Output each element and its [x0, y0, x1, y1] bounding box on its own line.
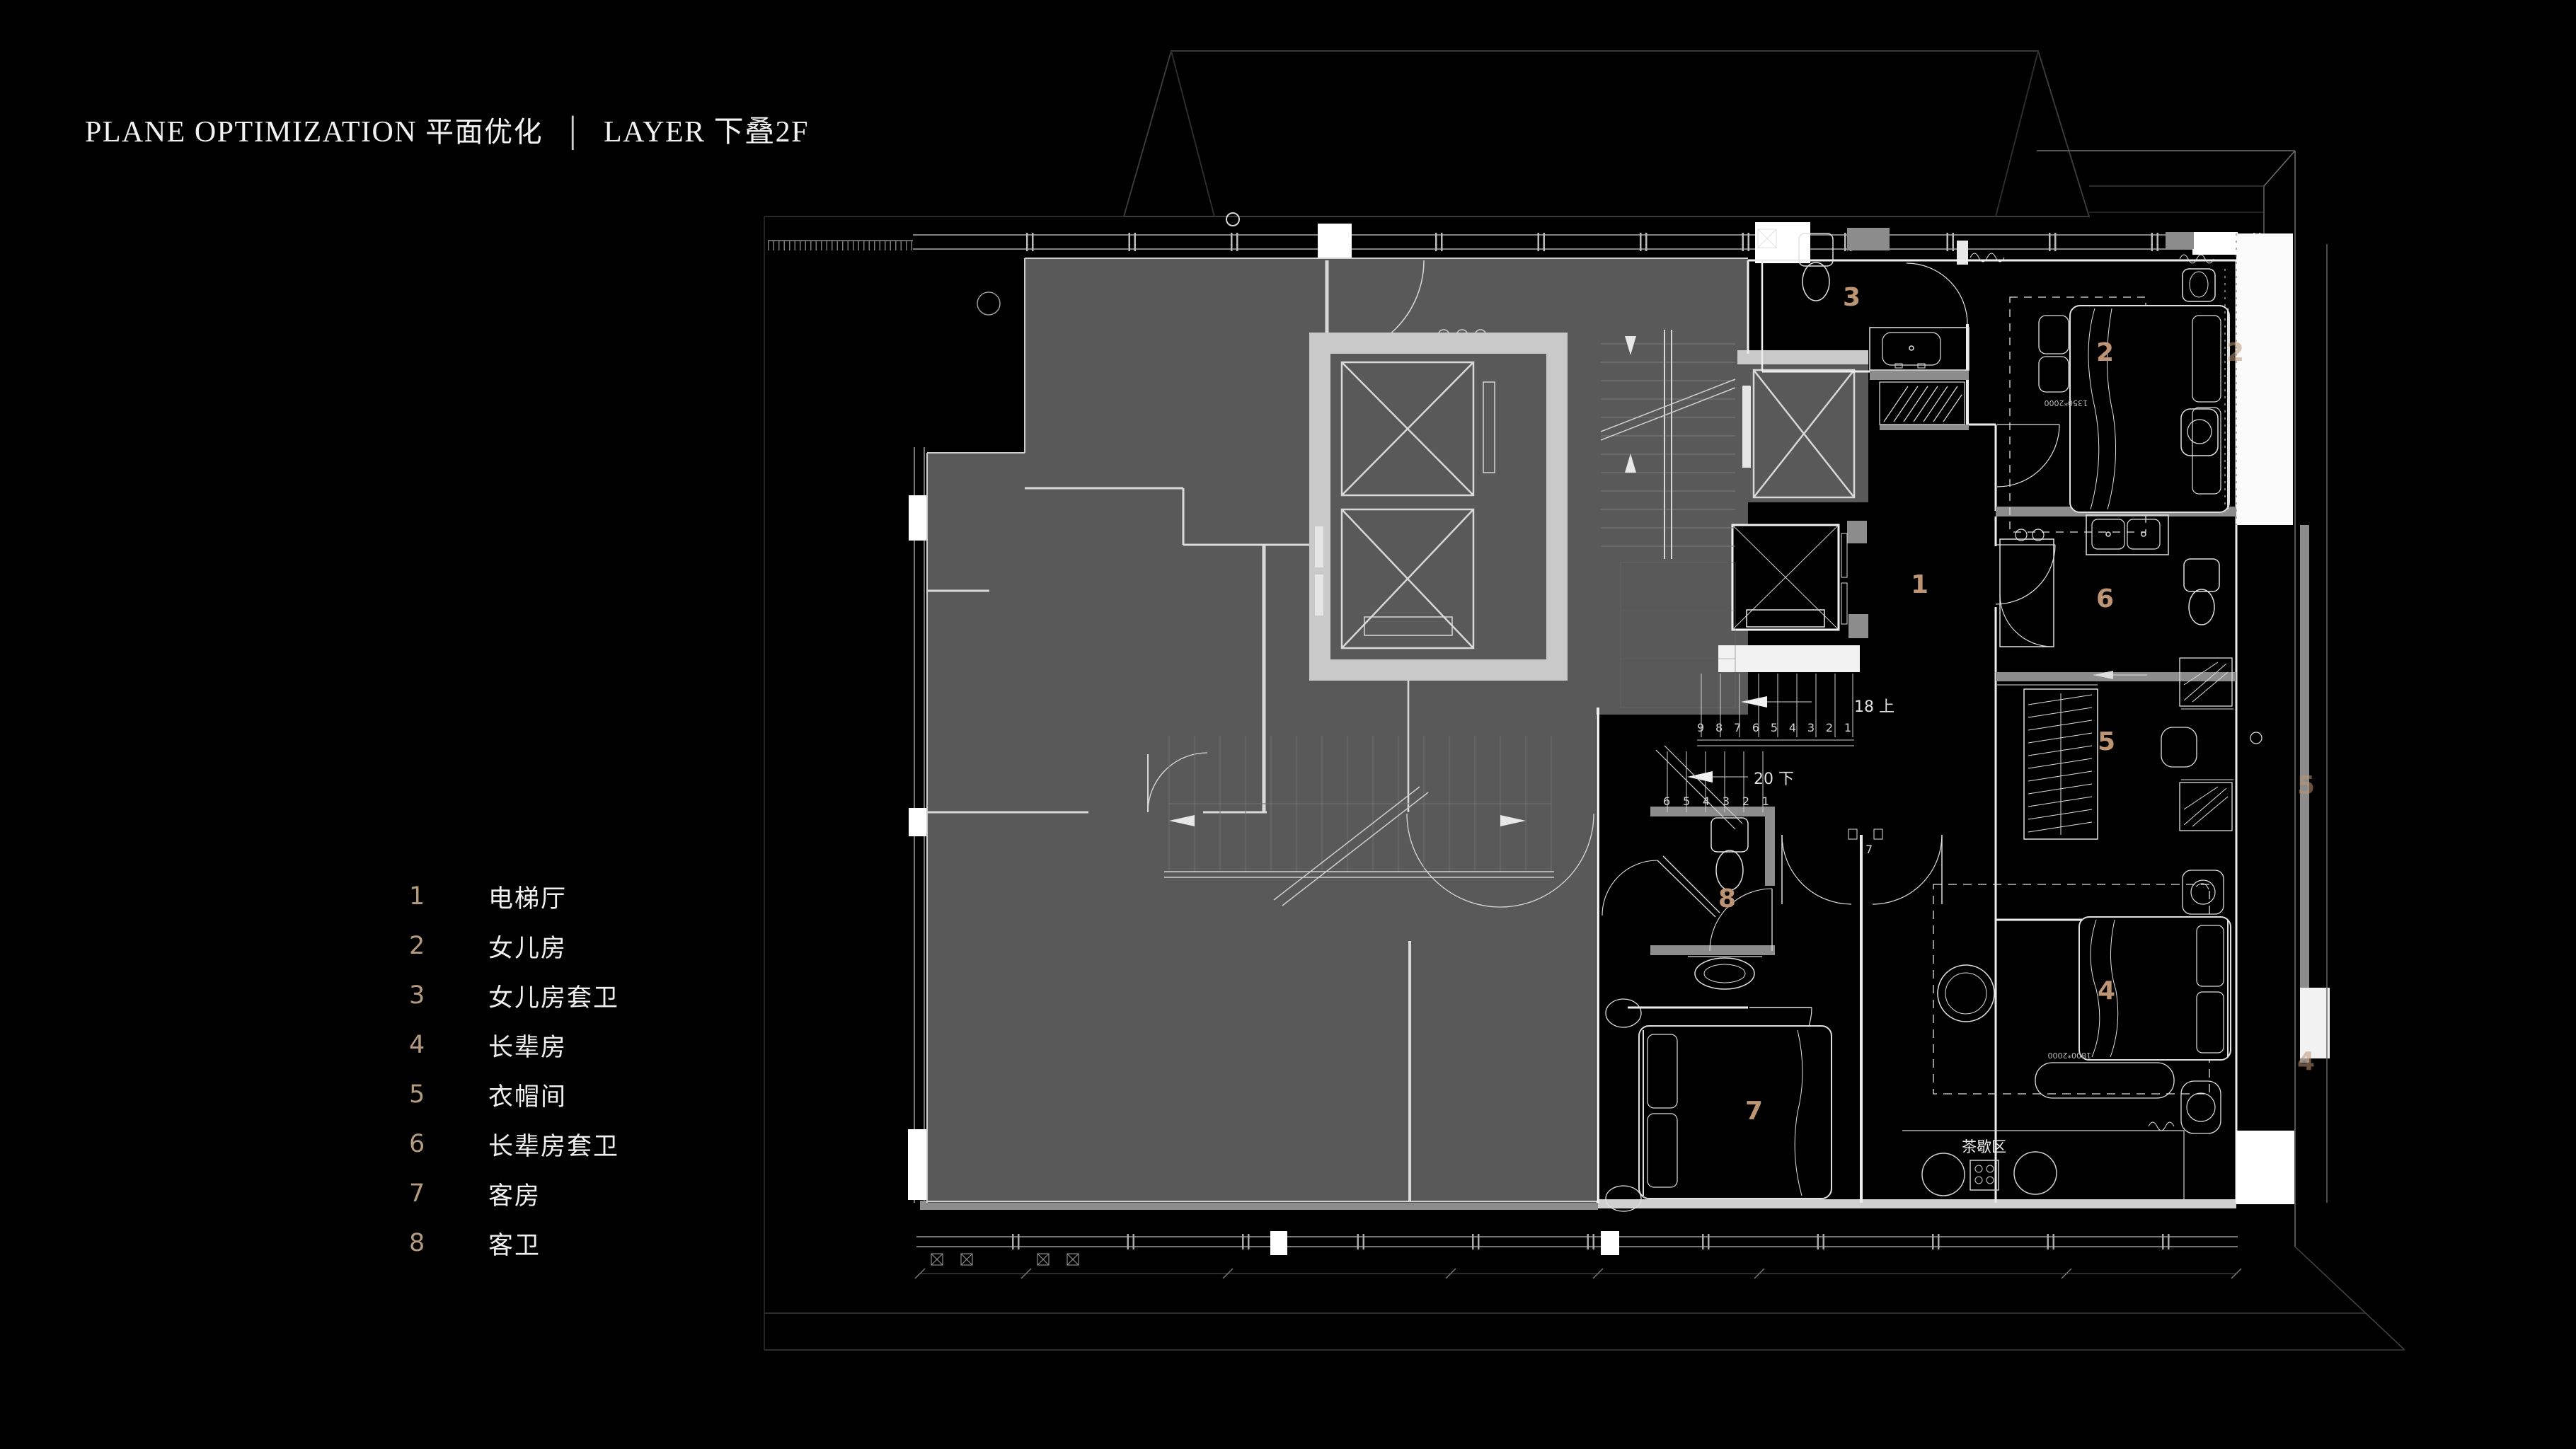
room-label-2: 2 [2096, 338, 2114, 367]
tea-area-label: 茶歇区 [1962, 1138, 2006, 1155]
room4-bedroom [1933, 870, 2231, 1133]
room-label-6: 6 [2096, 584, 2114, 613]
slide: PLANE OPTIMIZATION 平面优化 │ LAYER 下叠2F 1电梯… [0, 0, 2576, 1449]
edge-label-2: 2 [2226, 338, 2244, 367]
bottom-window-band [915, 1199, 2243, 1278]
stair-up-label: 18 上 [1854, 698, 1894, 716]
room2-bedroom [1970, 253, 2229, 532]
room-label-5: 5 [2098, 727, 2115, 756]
bed-dim-room2: 1350*2000 [2045, 398, 2088, 408]
room-label-3: 3 [1843, 283, 1861, 312]
room7-bedroom [1606, 999, 1832, 1211]
top-window-band [768, 213, 2299, 265]
tea-area [1902, 1131, 2184, 1201]
edge-label-5: 5 [2297, 771, 2315, 800]
bed-dim-room4: 1800*2000 [2048, 1051, 2092, 1060]
stair-treads-lower: 6 5 4 3 2 1 [1663, 795, 1769, 808]
room-label-1: 1 [1911, 570, 1928, 599]
stair-riser-note: 7 [1865, 843, 1873, 856]
room6-bath [1996, 515, 2219, 647]
wardrobe-hatch [1880, 382, 1965, 425]
room5-closet [1997, 658, 2262, 839]
elevator-shaft-lower-right [1718, 521, 1868, 672]
room-label-8: 8 [1718, 884, 1736, 913]
room-label-4: 4 [2098, 976, 2115, 1005]
edge-label-4: 4 [2297, 1047, 2315, 1076]
floor-plan: 1 2 3 4 5 6 7 8 2 5 4 18 上 20 下 9 8 7 6 … [0, 0, 2576, 1449]
room8-bath [1602, 818, 1772, 989]
stair-down-label: 20 下 [1754, 770, 1794, 788]
room-label-7: 7 [1745, 1097, 1763, 1126]
